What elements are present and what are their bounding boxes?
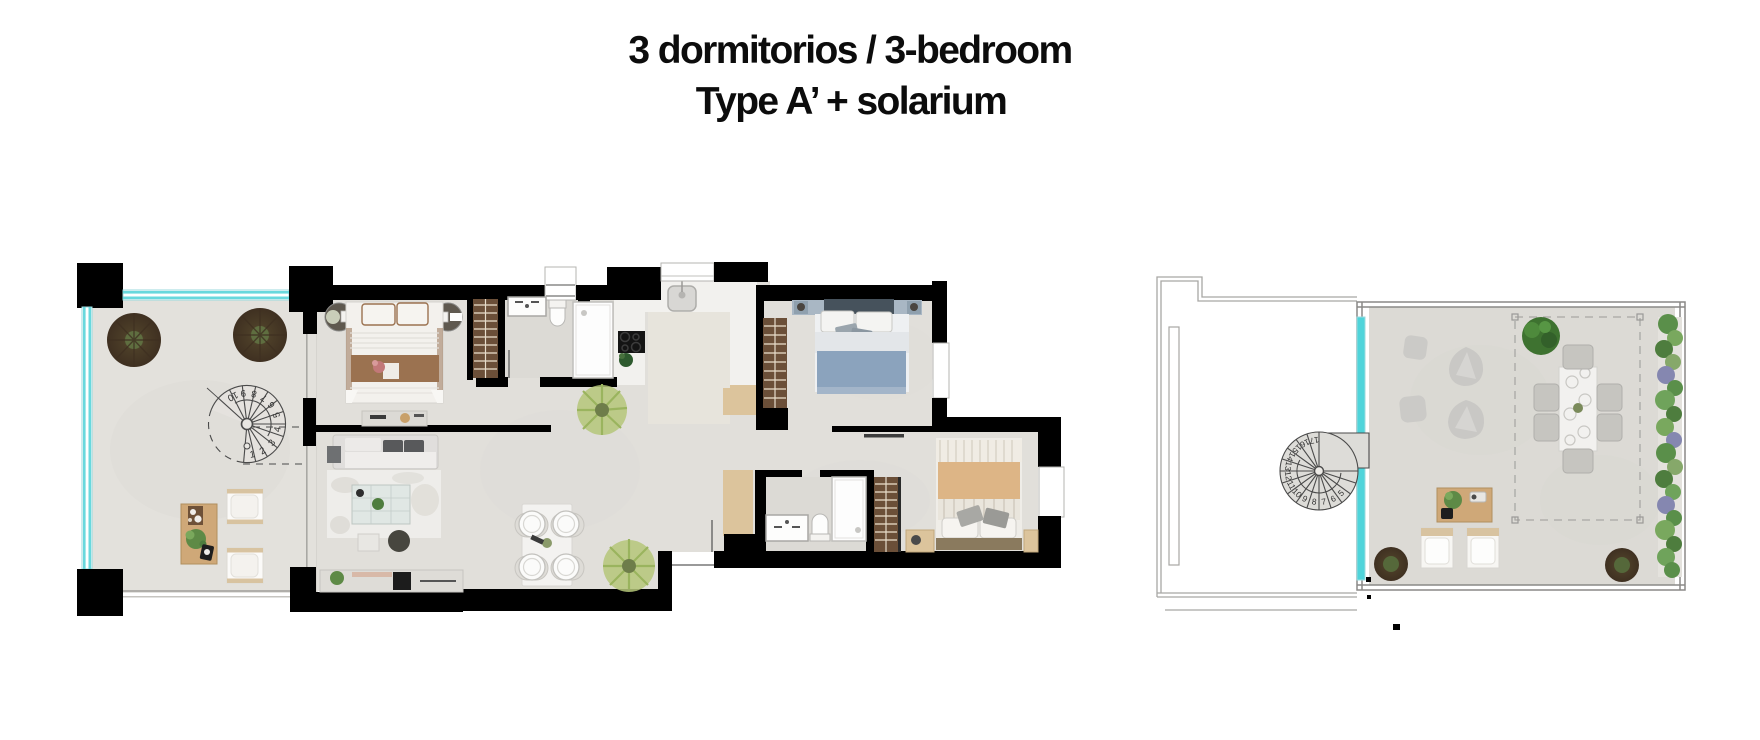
- svg-text:Type A’ + solarium: Type A’ + solarium: [696, 80, 1006, 123]
- svg-text:3 dormitorios / 3-bedroom: 3 dormitorios / 3-bedroom: [628, 29, 1071, 72]
